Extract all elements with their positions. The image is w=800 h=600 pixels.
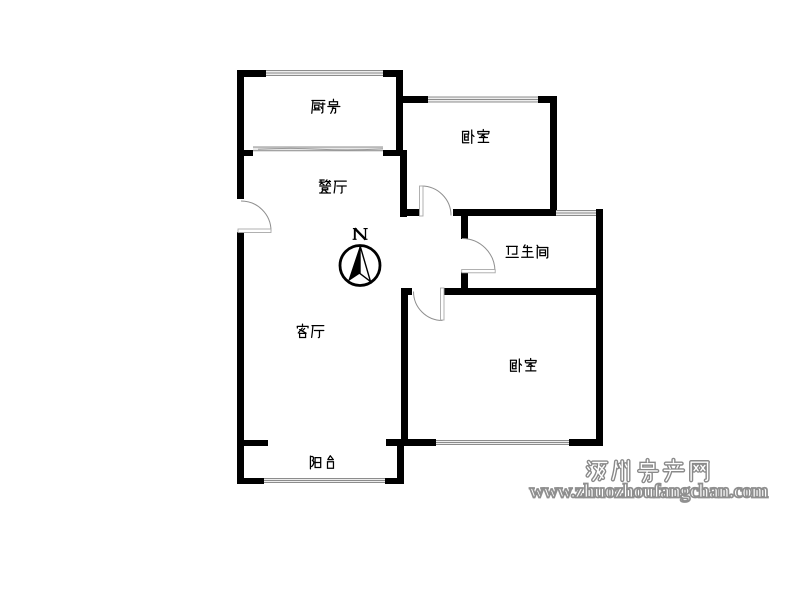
svg-text:www.zhuozhoufangchan.com: www.zhuozhoufangchan.com [529,481,768,503]
